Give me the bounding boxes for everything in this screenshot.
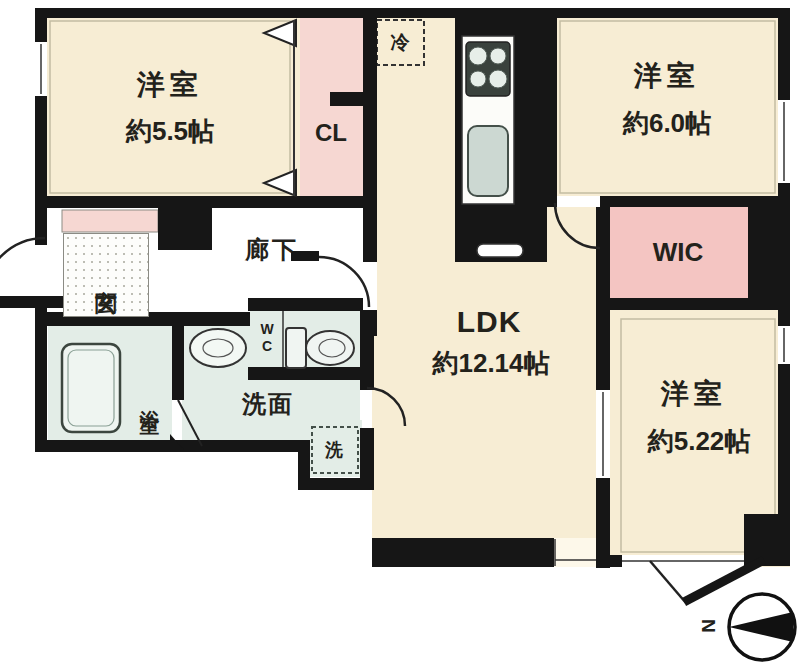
counter-end: [477, 244, 523, 257]
wall: [778, 8, 790, 100]
wall: [172, 318, 184, 400]
wic-label: WIC: [653, 239, 704, 265]
floor-plan: 洋室 約5.5帖 洋室 約6.0帖 洋室 約5.22帖 LDK 約12.14帖 …: [0, 0, 800, 668]
wall: [596, 478, 610, 568]
wall-corner-block: [744, 514, 790, 566]
wall: [158, 203, 212, 250]
ldk-name: LDK: [457, 307, 522, 337]
balcony-edge-line: [650, 561, 686, 603]
bathtub-icon: [62, 344, 120, 432]
hallway-label: 廊下: [245, 238, 299, 262]
toilet-tank-icon: [286, 328, 306, 368]
entrance-shoe-cabinet: [62, 210, 158, 232]
wall: [596, 555, 622, 567]
bedroom3-size: 約5.22帖: [648, 428, 751, 454]
compass-north-label: N: [699, 619, 718, 633]
stove-burner-icon: [490, 48, 506, 64]
ldk-size: 約12.14帖: [432, 350, 549, 376]
bedroom1-name: 洋室: [137, 71, 203, 99]
laundry-label: 洗: [325, 441, 343, 459]
toilet-bowl-icon: [306, 331, 354, 365]
bathroom-label: 浴室: [140, 394, 160, 402]
wall: [248, 367, 372, 380]
toilet-label: WC: [260, 321, 274, 355]
wall: [372, 538, 554, 567]
wall: [596, 196, 610, 390]
door-opening: [557, 196, 600, 207]
bedroom1-floor: [35, 8, 300, 208]
bedroom1-size: 約5.5帖: [126, 118, 214, 144]
bedroom2-size: 約6.0帖: [623, 110, 711, 136]
entrance-door-arc: [0, 238, 45, 300]
stove-burner-icon: [469, 47, 487, 65]
wall-duct-space: [748, 196, 790, 310]
wall: [363, 208, 377, 262]
kitchen-sink-icon: [468, 126, 508, 196]
wall-stub: [330, 92, 372, 106]
compass: [729, 594, 795, 660]
wall: [35, 305, 47, 452]
wall: [363, 8, 377, 208]
wash-basin-icon: [190, 329, 246, 367]
wall: [543, 8, 557, 207]
floor-plan-drawing: [0, 0, 800, 668]
closet-floor: [300, 8, 363, 208]
closet-label: CL: [315, 121, 347, 145]
wall: [778, 364, 790, 516]
wall: [35, 96, 47, 208]
wall: [360, 298, 374, 390]
balcony-opening: [554, 538, 596, 567]
refrigerator-label: 冷: [391, 33, 410, 52]
bedroom3-name: 洋室: [661, 380, 727, 408]
stove-burner-icon: [470, 71, 486, 87]
wall: [248, 298, 372, 311]
washroom-label: 洗面: [242, 392, 294, 416]
stove-burner-icon: [489, 70, 507, 88]
entrance-label: 玄関: [95, 272, 117, 280]
bedroom2-name: 洋室: [634, 62, 700, 90]
wall: [778, 298, 790, 326]
wall: [35, 8, 790, 18]
wall: [35, 8, 47, 42]
